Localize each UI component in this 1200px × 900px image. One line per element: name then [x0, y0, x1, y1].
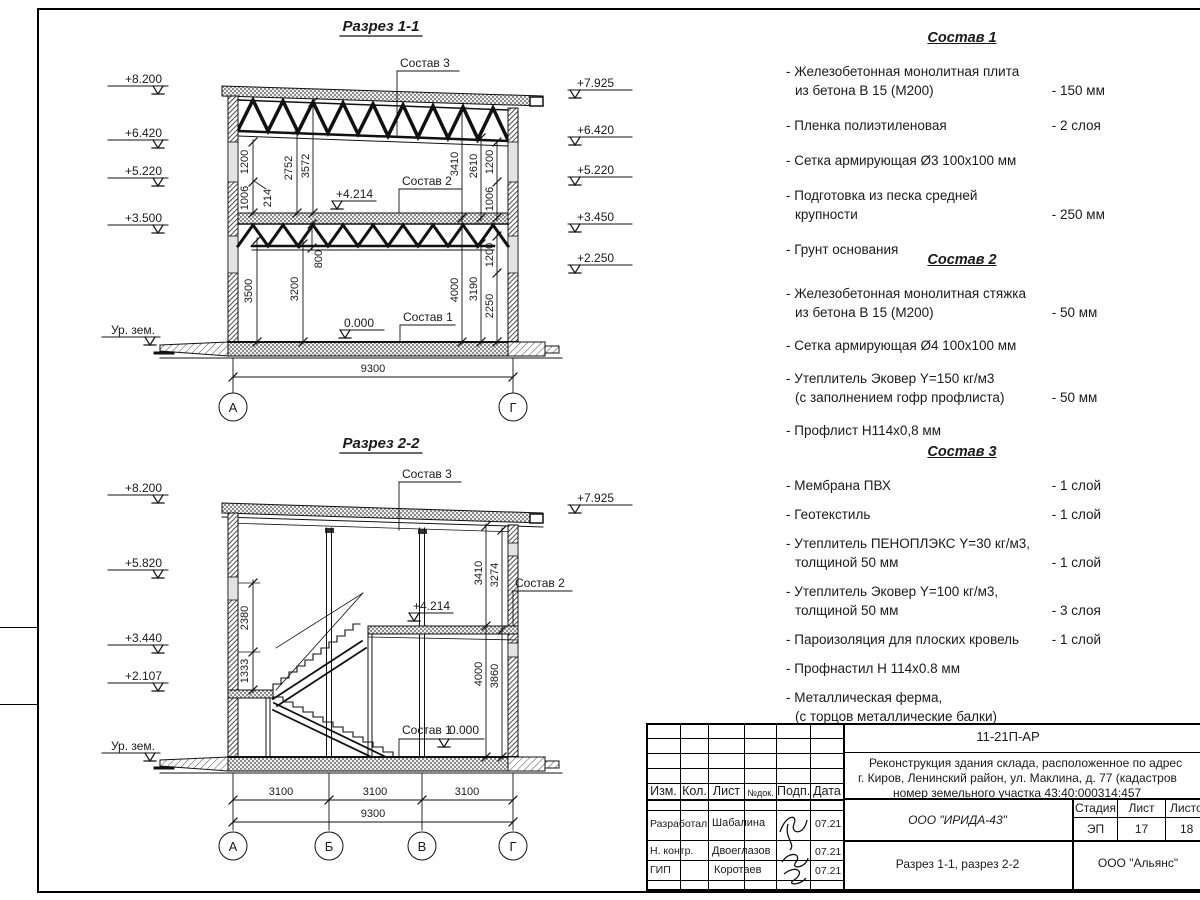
svg-text:3100: 3100	[455, 786, 479, 798]
col-kol: Кол.	[681, 784, 708, 798]
material-item: - Мембрана ПВХ	[786, 476, 1052, 495]
svg-text:Состав 2: Состав 2	[515, 576, 565, 590]
svg-text:3200: 3200	[289, 277, 301, 301]
svg-text:Ур. зем.: Ур. зем.	[111, 323, 155, 337]
col-podp: Подп.	[777, 784, 810, 798]
svg-text:Состав 3: Состав 3	[402, 467, 452, 481]
roof-truss	[238, 100, 508, 146]
level-0000: 0.000	[339, 316, 384, 338]
svg-text:+6.420: +6.420	[577, 123, 614, 137]
sections-drawing: Разрез 1-1	[40, 10, 660, 872]
svg-text:Состав 1: Состав 1	[402, 723, 452, 737]
sheet-value: 17	[1118, 822, 1165, 836]
composition-list-2: Состав 2 - Железобетонная монолитная стя…	[786, 252, 1138, 440]
material-item: - Сетка армирующая Ø3 100х100 мм	[786, 151, 1052, 170]
col-ndok: №док.	[745, 788, 776, 798]
frame-left	[37, 8, 39, 893]
svg-text:2752: 2752	[283, 156, 295, 180]
dims-right-2	[482, 522, 506, 761]
svg-text:4000: 4000	[473, 662, 485, 686]
material-item: - Железобетонная монолитная стяжка из бе…	[786, 284, 1052, 322]
svg-text:9300: 9300	[361, 363, 385, 375]
row-date: 07.21	[815, 818, 841, 830]
material-item: - Профлист Н114х0,8 мм	[786, 421, 1052, 440]
project-description-line1: Реконструкция здания склада, расположенн…	[869, 756, 1182, 770]
wall-right-2	[508, 525, 518, 757]
project-description-line3: номер земельного участка 43:40:000314:45…	[893, 786, 1141, 800]
axis-bubble-g: Г	[509, 400, 516, 415]
svg-text:3410: 3410	[449, 152, 461, 176]
composition-3-title: Состав 3	[786, 444, 1138, 460]
svg-text:2250: 2250	[484, 294, 496, 318]
drawing-sheet: { "labels": { "c1": "Состав 1", "c2": "С…	[0, 0, 1200, 900]
frame-bottom	[37, 891, 1200, 893]
material-item: - Утеплитель ПЕНОПЛЭКС Y=30 кг/м3, толщи…	[786, 534, 1052, 572]
sheets-label: Листов	[1170, 801, 1200, 815]
ground-slab-2	[155, 757, 562, 773]
section-2-2: Разрез 2-2	[102, 435, 632, 860]
material-item: - Металлическая ферма, (с торцов металли…	[786, 688, 1052, 726]
svg-text:3500: 3500	[243, 279, 255, 303]
material-item: - Утеплитель Эковер Y=100 кг/м3, толщино…	[786, 582, 1052, 620]
svg-text:3410: 3410	[473, 561, 485, 585]
svg-text:3100: 3100	[269, 786, 293, 798]
composition-2-title: Состав 2	[786, 252, 1138, 268]
svg-text:+5.820: +5.820	[125, 556, 162, 570]
svg-text:+4.214: +4.214	[413, 599, 450, 613]
material-item: - Железобетонная монолитная плита из бет…	[786, 62, 1052, 100]
wall-left-2	[228, 513, 238, 757]
section-1-1-title: Разрез 1-1	[342, 18, 419, 35]
svg-text:1200: 1200	[239, 150, 251, 174]
elevation-marks-left: +8.200 +6.420 +5.220 +3.500 Ур. зем.	[102, 72, 168, 345]
svg-text:3274: 3274	[489, 563, 501, 587]
composition-list-1: Состав 1 - Железобетонная монолитная пли…	[786, 30, 1138, 259]
signature-strokes	[776, 810, 812, 888]
svg-text:3572: 3572	[300, 154, 312, 178]
row-date: 07.21	[815, 865, 841, 877]
frame-tick	[0, 704, 37, 705]
material-item: - Утеплитель Эковер Y=150 кг/м3 (с запол…	[786, 369, 1052, 407]
sheet-label: Лист	[1118, 801, 1165, 815]
svg-text:+6.420: +6.420	[125, 126, 162, 140]
svg-text:+3.440: +3.440	[125, 631, 162, 645]
stage-label: Стадия	[1074, 801, 1117, 815]
level-4214: +4.214	[331, 187, 376, 209]
svg-text:0.000: 0.000	[449, 723, 479, 737]
firm-name: ООО "Альянс"	[1074, 856, 1200, 870]
elevation-marks-right: +7.925 +6.420 +5.220 +3.450 +2.250	[568, 76, 632, 273]
svg-text:4000: 4000	[449, 278, 461, 302]
sheets-value: 18	[1180, 822, 1193, 836]
row-role: Н. контр.	[650, 845, 693, 857]
leader-sostav2: Состав 2	[399, 174, 461, 213]
material-item: - Сетка армирующая Ø4 100х100 мм	[786, 336, 1052, 355]
document-code: 11-21П-АР	[843, 729, 1173, 744]
svg-text:+7.925: +7.925	[577, 76, 614, 90]
section-2-2-title: Разрез 2-2	[342, 435, 420, 452]
svg-text:2380: 2380	[239, 606, 251, 630]
elevation-marks-right-2: +7.925	[568, 491, 632, 513]
svg-text:9300: 9300	[361, 808, 385, 820]
doc-title: Разрез 1-1, разрез 2-2	[845, 857, 1070, 871]
stage-value: ЭП	[1074, 822, 1117, 836]
row-role: Разработал	[650, 818, 707, 830]
material-item: - Профнастил Н 114х0.8 мм	[786, 659, 1052, 678]
svg-text:+4.214: +4.214	[336, 187, 373, 201]
svg-text:1333: 1333	[239, 659, 251, 683]
axis-bubble-a: А	[229, 400, 238, 415]
svg-text:Ур. зем.: Ур. зем.	[111, 739, 155, 753]
svg-text:+5.220: +5.220	[577, 163, 614, 177]
row-name: Коротаев	[714, 864, 762, 876]
roof-slab	[222, 86, 543, 106]
col-data: Дата	[811, 784, 843, 798]
svg-text:2610: 2610	[468, 154, 480, 178]
svg-text:800: 800	[313, 250, 325, 268]
project-description-line2: г. Киров, Ленинский район, ул. Маклина, …	[858, 771, 1177, 785]
mid-floor-2	[368, 626, 518, 640]
leader-sostav2-2: Состав 2	[512, 576, 572, 626]
material-item: - Пароизоляция для плоских кровель	[786, 630, 1052, 649]
ground-slab	[155, 342, 562, 358]
row-name: Двоеглазов	[712, 845, 770, 857]
wall-left	[228, 96, 238, 344]
svg-text:3860: 3860	[489, 664, 501, 688]
svg-text:+8.200: +8.200	[125, 72, 162, 86]
col-list: Лист	[709, 784, 744, 798]
mid-floor	[238, 213, 508, 250]
svg-text:3190: 3190	[468, 277, 480, 301]
axis-bubble-b2: Б	[325, 839, 334, 854]
frame-tick	[0, 627, 37, 628]
level-4214-2: +4.214	[408, 599, 453, 621]
leader-sostav1: Состав 1	[400, 310, 455, 342]
svg-text:+2.250: +2.250	[577, 251, 614, 265]
svg-text:+7.925: +7.925	[577, 491, 614, 505]
svg-text:0.000: 0.000	[344, 316, 374, 330]
svg-text:1006: 1006	[484, 187, 496, 211]
roof-slab-2	[222, 503, 543, 534]
elevation-marks-left-2: +8.200 +5.820 +3.440 +2.107 Ур. зем.	[102, 481, 168, 761]
svg-text:+2.107: +2.107	[125, 669, 162, 683]
composition-list-3: Состав 3 - Мембрана ПВХ- 1 слой - Геотек…	[786, 444, 1138, 726]
col-izm: Изм.	[646, 784, 681, 798]
svg-text:Состав 3: Состав 3	[400, 56, 450, 70]
svg-text:+3.450: +3.450	[577, 210, 614, 224]
org-name: ООО "ИРИДА-43"	[845, 813, 1070, 827]
section-1-1: Разрез 1-1	[102, 18, 632, 421]
svg-text:Состав 1: Состав 1	[403, 310, 453, 324]
composition-1-title: Состав 1	[786, 30, 1138, 46]
axis-bubble-a2: А	[229, 839, 238, 854]
svg-text:+8.200: +8.200	[125, 481, 162, 495]
svg-text:1006: 1006	[239, 186, 251, 210]
leader-sostav1-2: Состав 1 0.000	[399, 723, 484, 757]
axis-bubble-g2: Г	[509, 839, 516, 854]
svg-text:Состав 2: Состав 2	[402, 174, 452, 188]
material-item: - Пленка полиэтиленовая	[786, 116, 1052, 135]
svg-text:1200: 1200	[484, 243, 496, 267]
svg-text:+5.220: +5.220	[125, 164, 162, 178]
material-item: - Геотекстиль	[786, 505, 1052, 524]
stair-flight-lower	[273, 697, 393, 757]
row-name: Шабалина	[712, 817, 765, 829]
svg-text:+3.500: +3.500	[125, 211, 162, 225]
svg-text:1200: 1200	[484, 150, 496, 174]
row-role: ГИП	[650, 864, 671, 876]
svg-text:3100: 3100	[363, 786, 387, 798]
material-item: - Подготовка из песка средней крупности	[786, 186, 1052, 224]
row-date: 07.21	[815, 846, 841, 858]
svg-text:214: 214	[262, 189, 274, 207]
wall-right	[508, 108, 518, 344]
axis-bubble-v2: В	[418, 839, 427, 854]
